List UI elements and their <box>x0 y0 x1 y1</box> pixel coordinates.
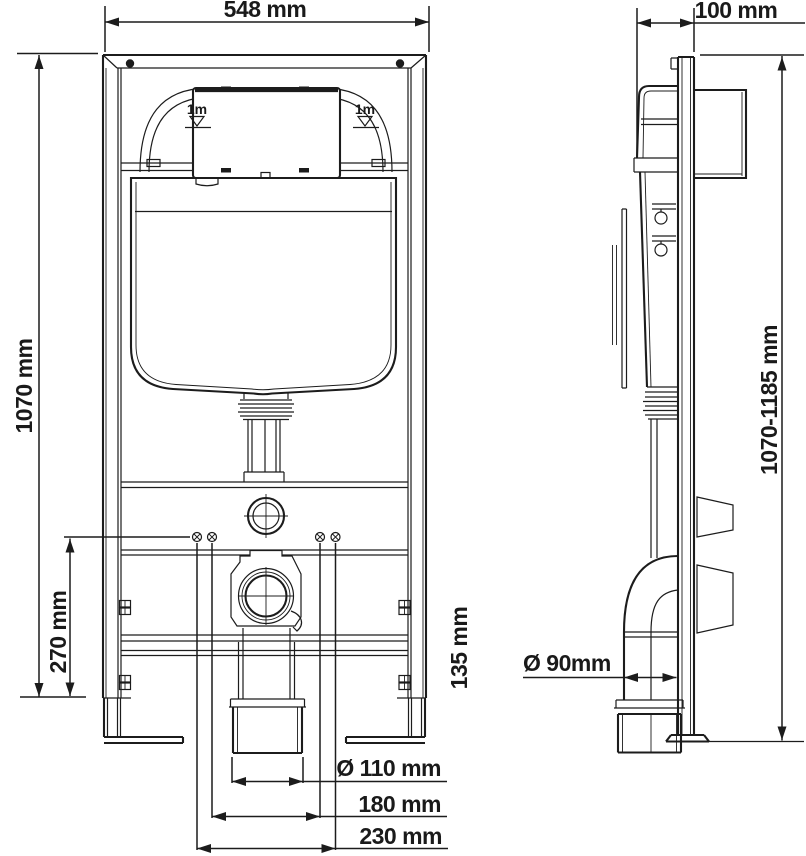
level-mark-label: 1m <box>187 101 207 117</box>
dim-foot-135: 135 mm <box>446 607 472 690</box>
dim-label-270: 270 mm <box>45 591 71 674</box>
anchor-blocks <box>697 497 733 633</box>
dim-label-range: 1070-1185 mm <box>756 325 782 475</box>
wall-rail <box>671 57 694 735</box>
arrowhead <box>232 777 246 786</box>
screw-left <box>126 59 134 67</box>
arrowhead <box>289 777 303 786</box>
drain-elbow <box>614 556 685 753</box>
dim-label-90: Ø 90mm <box>523 650 611 676</box>
coupling-ridges <box>643 397 678 419</box>
arrowhead <box>35 56 44 70</box>
box-slot <box>221 168 231 173</box>
drain-pipe-front <box>229 628 306 753</box>
arrowhead <box>637 19 651 28</box>
flush-pipe <box>244 420 284 483</box>
box-slot <box>299 168 309 173</box>
flush-valve-coupling <box>238 392 294 420</box>
arrowhead <box>415 18 429 27</box>
back-plate <box>613 209 627 388</box>
technical-drawing: 1m 1m <box>0 0 806 856</box>
dim-label-110: Ø 110 mm <box>336 755 441 781</box>
baseplate-left <box>104 737 183 743</box>
tank-flange <box>634 158 678 172</box>
dim-label-135: 135 mm <box>446 607 472 690</box>
arrowhead <box>663 673 677 682</box>
arrowhead <box>306 812 320 821</box>
box-slot <box>299 87 309 92</box>
dim-outlet-110: Ø 110 mm <box>232 755 447 786</box>
water-inlet-port <box>244 494 288 538</box>
arrowhead <box>66 539 75 553</box>
arrowhead <box>778 727 787 741</box>
arrowhead <box>680 19 694 28</box>
anchor-block <box>697 497 733 537</box>
arrowhead <box>105 18 119 27</box>
stud <box>316 533 325 542</box>
arrowhead <box>197 844 211 853</box>
mounting-hooks <box>652 204 676 256</box>
arrowhead <box>778 57 787 71</box>
dim-label-1070: 1070 mm <box>11 338 37 433</box>
drawing-canvas: 1m 1m <box>0 0 806 856</box>
screw-right <box>396 59 404 67</box>
dim-width-548: 548 mm <box>105 0 429 52</box>
outlet-clamp <box>231 551 302 632</box>
access-box <box>193 87 340 186</box>
flush-duct <box>694 90 746 178</box>
front-view: 1m 1m <box>103 55 426 753</box>
dim-label-230: 230 mm <box>359 823 442 849</box>
box-tab <box>196 178 218 186</box>
dim-drain-90: Ø 90mm <box>523 650 677 682</box>
dim-depth-100: 100 mm <box>637 0 805 156</box>
stud <box>331 533 340 542</box>
hook <box>652 236 676 256</box>
box-slot <box>221 87 231 92</box>
baseplate-right <box>346 737 425 743</box>
flush-pipe-side <box>651 419 657 558</box>
arrowhead <box>35 683 44 697</box>
arrowhead <box>66 683 75 697</box>
hook <box>652 204 676 224</box>
level-mark-right: 1m <box>353 101 379 128</box>
cistern-side <box>634 86 678 558</box>
dim-label-180: 180 mm <box>358 791 441 817</box>
dim-height-range: 1070-1185 mm <box>700 55 804 741</box>
stud <box>193 533 202 542</box>
arrowhead <box>322 844 336 853</box>
dim-label-548: 548 mm <box>224 0 307 22</box>
arrowhead <box>624 673 638 682</box>
stud <box>208 533 217 542</box>
dim-label-100: 100 mm <box>695 0 778 23</box>
arrowhead <box>212 812 226 821</box>
cistern-tank <box>131 178 396 394</box>
frame-feet <box>104 698 425 743</box>
level-mark-label: 1m <box>355 101 375 117</box>
anchor-block <box>697 565 733 633</box>
